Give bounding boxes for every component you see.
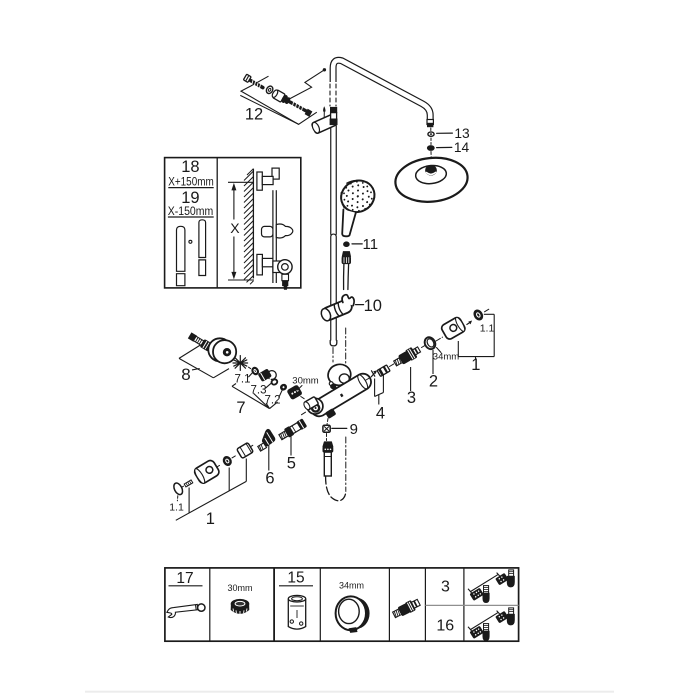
svg-text:34mm: 34mm xyxy=(433,352,459,363)
svg-text:13: 13 xyxy=(454,126,470,141)
svg-text:12: 12 xyxy=(245,105,263,123)
svg-text:6: 6 xyxy=(265,469,274,487)
svg-text:X: X xyxy=(230,220,240,236)
svg-text:10: 10 xyxy=(364,297,382,315)
svg-text:3: 3 xyxy=(407,389,416,407)
svg-text:1.1: 1.1 xyxy=(480,323,495,335)
svg-text:2: 2 xyxy=(429,372,438,390)
svg-text:14: 14 xyxy=(454,140,470,155)
svg-text:X-150mm: X-150mm xyxy=(168,206,214,218)
svg-text:11: 11 xyxy=(363,236,379,253)
svg-text:34mm: 34mm xyxy=(339,580,364,590)
svg-text:7: 7 xyxy=(236,399,245,417)
svg-text:18: 18 xyxy=(181,158,199,176)
svg-text:1.1: 1.1 xyxy=(169,501,184,513)
svg-text:4: 4 xyxy=(376,404,385,422)
svg-text:3: 3 xyxy=(441,579,450,596)
svg-text:19: 19 xyxy=(181,189,199,207)
svg-text:30mm: 30mm xyxy=(227,583,252,593)
svg-text:8: 8 xyxy=(181,365,190,384)
svg-text:16: 16 xyxy=(436,618,454,635)
svg-text:5: 5 xyxy=(287,454,296,472)
svg-text:1: 1 xyxy=(206,510,215,528)
svg-text:15: 15 xyxy=(287,570,304,587)
svg-text:1: 1 xyxy=(471,356,480,374)
svg-text:17: 17 xyxy=(176,570,193,587)
svg-text:X+150mm: X+150mm xyxy=(168,176,214,188)
svg-text:9: 9 xyxy=(350,421,358,438)
svg-text:7.1: 7.1 xyxy=(235,373,251,385)
svg-text:30mm: 30mm xyxy=(292,376,318,387)
